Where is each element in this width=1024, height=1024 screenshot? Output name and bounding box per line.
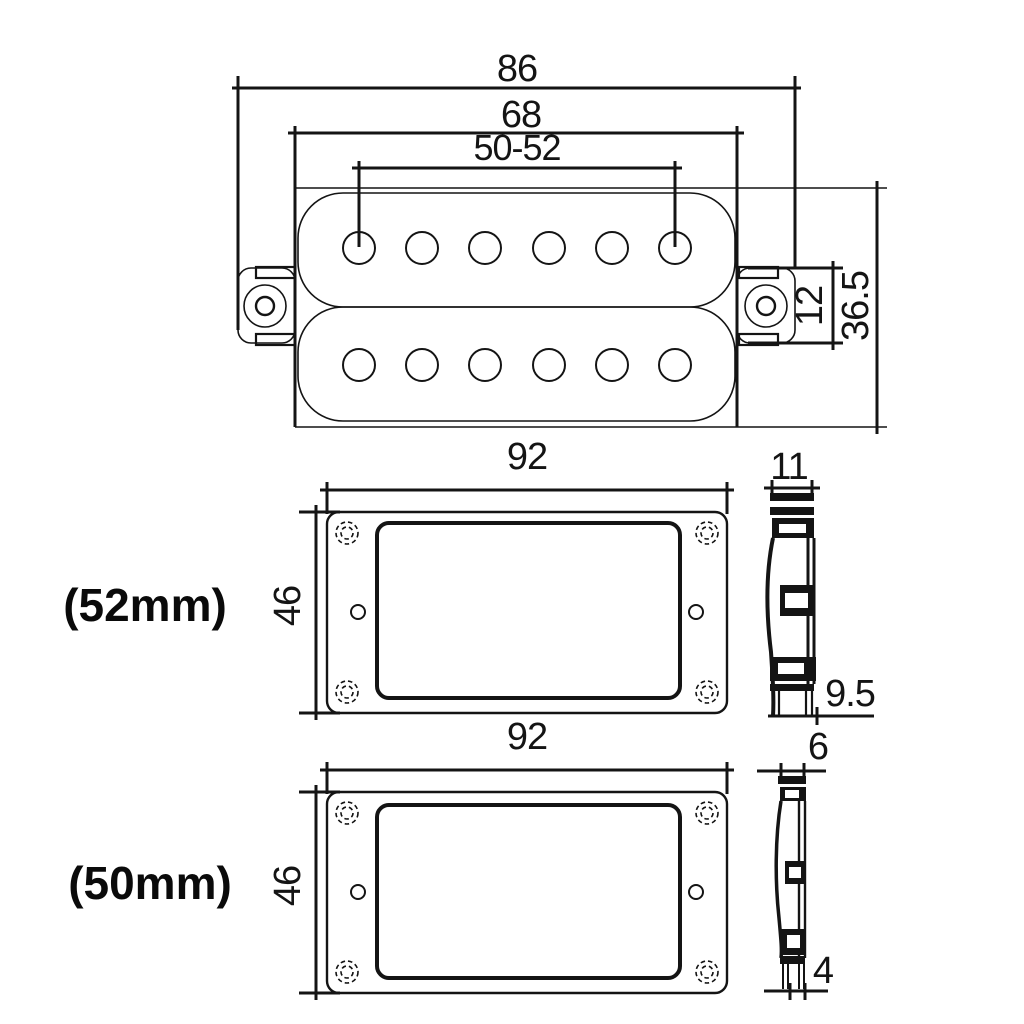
dimension-ring50-side-width: 6 (757, 726, 828, 780)
mounting-ring-52-side-view: 11 9.5 (764, 446, 875, 725)
pole-piece-hole (469, 349, 501, 381)
ear-screw-boss (244, 285, 286, 327)
dim-9-5-label: 9.5 (825, 673, 875, 715)
screw-hole (341, 527, 353, 539)
screw-hole (341, 686, 353, 698)
height-adjust-hole-left (351, 885, 365, 899)
profile-bar (770, 507, 814, 515)
dimension-ring50-height: 46 (267, 785, 340, 1000)
screw-hole-countersink (696, 802, 718, 824)
height-adjust-hole-right (689, 605, 703, 619)
profile-slot (779, 524, 806, 533)
screw-hole-countersink (336, 802, 358, 824)
screw-hole (701, 527, 713, 539)
ring-inner-opening (377, 805, 680, 978)
profile-bottom-flange (770, 684, 814, 691)
height-adjust-hole-right (689, 885, 703, 899)
pole-piece-hole (659, 349, 691, 381)
dim-4-label: 4 (813, 950, 834, 992)
ring-inner-opening (377, 523, 680, 698)
pole-piece-hole (406, 232, 438, 264)
pole-pieces-bottom-row (343, 349, 691, 381)
screw-hole (701, 966, 713, 978)
pole-piece-hole (406, 349, 438, 381)
screw-hole-countersink (336, 522, 358, 544)
bobbin-top (298, 193, 735, 307)
mounting-ring-50-front-view: 92 46 (50mm) (68, 716, 734, 1000)
profile-slot (785, 790, 799, 798)
profile-slot (785, 593, 808, 608)
mounting-ring-50-side-view: 6 4 (757, 726, 834, 1000)
humbucker-dimension-drawing: 86 68 50-52 12 36.5 (0, 0, 1024, 1024)
bobbin-bottom (298, 307, 735, 421)
dim-12-label: 12 (789, 286, 831, 326)
profile-slot (778, 663, 804, 674)
humbucker-top-view: 86 68 50-52 12 36.5 (232, 48, 887, 434)
ring-52-size-label: (52mm) (63, 579, 227, 631)
dim-46-label-52: 46 (267, 586, 309, 626)
ring-corner-screw-holes (336, 522, 718, 703)
ring-52-profile-section (767, 493, 816, 716)
ear-screw-hole (256, 297, 274, 315)
dim-11-label: 11 (770, 446, 807, 488)
ring-corner-screw-holes (336, 802, 718, 983)
dim-86-label: 86 (497, 48, 537, 90)
screw-hole-countersink (696, 522, 718, 544)
dimension-ring50-width: 92 (320, 716, 734, 794)
dimension-ring52-side-width: 11 (764, 446, 820, 497)
profile-slot (789, 867, 801, 878)
pole-pieces-top-row (343, 232, 691, 264)
dimension-pole-spacing: 50-52 (352, 127, 682, 247)
screw-hole (701, 686, 713, 698)
dimension-overall-width: 86 (232, 48, 801, 330)
ring-outer-outline (327, 512, 727, 713)
screw-hole (341, 807, 353, 819)
dimension-ear-height: 12 (748, 261, 843, 350)
mounting-ear-right (737, 267, 795, 345)
ring-outer-outline (327, 792, 727, 993)
screw-hole (701, 807, 713, 819)
dim-92-label-52: 92 (507, 436, 547, 478)
height-adjust-hole-left (351, 605, 365, 619)
pole-piece-hole (343, 349, 375, 381)
profile-top-flange (778, 776, 806, 784)
dim-36-5-label: 36.5 (835, 271, 877, 341)
profile-slot (787, 935, 800, 948)
ring-50-size-label: (50mm) (68, 857, 232, 909)
pole-piece-hole (533, 232, 565, 264)
pole-piece-hole (596, 349, 628, 381)
dim-50-52-label: 50-52 (473, 127, 560, 168)
dimension-overall-height: 36.5 (835, 181, 877, 434)
pole-piece-hole (533, 349, 565, 381)
ear-screw-boss (745, 285, 787, 327)
profile-top-flange (770, 493, 814, 501)
screw-hole-countersink (696, 681, 718, 703)
dimension-ring52-width: 92 (320, 436, 734, 514)
ring-50-profile-section (776, 776, 806, 989)
ear-screw-hole (757, 297, 775, 315)
dimension-ring52-height: 46 (267, 505, 340, 720)
dim-6-label: 6 (808, 726, 828, 768)
pole-piece-hole (596, 232, 628, 264)
screw-hole-countersink (336, 681, 358, 703)
dim-46-label-50: 46 (267, 866, 309, 906)
pole-piece-hole (469, 232, 501, 264)
dim-92-label-50: 92 (507, 716, 547, 758)
technical-drawing-canvas: 86 68 50-52 12 36.5 (0, 0, 1024, 1024)
screw-hole (341, 966, 353, 978)
screw-hole-countersink (696, 961, 718, 983)
mounting-ring-52-front-view: 92 46 (52mm) (63, 436, 734, 720)
mounting-ear-left (238, 267, 295, 345)
screw-hole-countersink (336, 961, 358, 983)
profile-bottom-flange (780, 956, 805, 964)
